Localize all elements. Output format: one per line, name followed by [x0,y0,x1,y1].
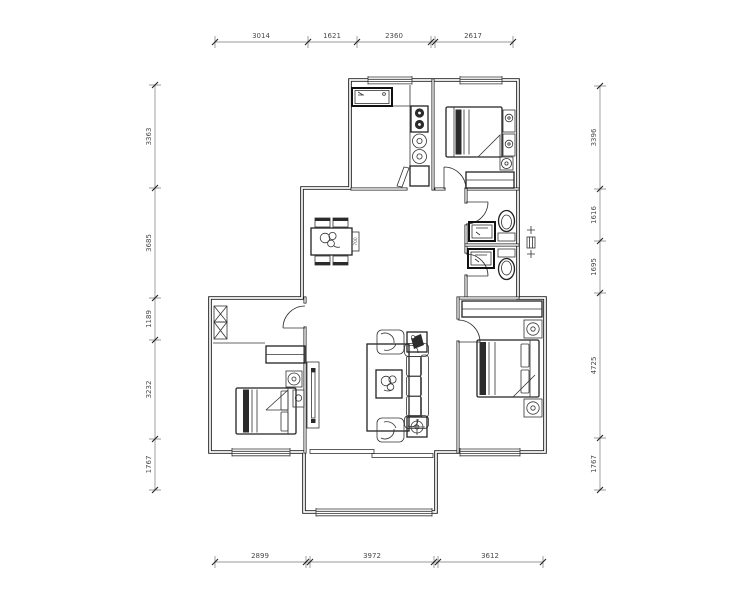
dim-label: 1616 [590,206,598,224]
balcony-window [316,508,432,517]
shelf-unit [214,306,227,322]
sideboard-label: 700 [353,237,359,246]
dimension-line-bottom: 2899 3972 3612 [212,552,546,568]
nightstand [524,399,542,417]
dimension-line-left: 3363 3685 1189 3232 1767 [145,82,161,493]
dim-label: 1621 [323,32,341,40]
door-bedroom-right [458,320,480,342]
dining-chair [315,218,330,227]
dim-label: 1767 [590,455,598,473]
bedroom-right [462,301,542,417]
tv-cabinet [307,362,319,428]
interior-walls [213,80,518,452]
exterior-walls [210,80,545,512]
stove [411,106,428,132]
dim-label: 3685 [145,234,153,252]
dining-chair [333,218,348,227]
wardrobe [266,346,305,363]
living-room [367,330,429,442]
coffee-table [376,370,402,398]
nightstand [293,390,304,407]
dim-label: 3396 [590,128,598,146]
bedroom-top-right [446,107,515,188]
stool [500,157,513,170]
kitchen [352,85,429,187]
dim-label: 2360 [385,32,403,40]
table-flowers [320,232,340,247]
floor-plan-canvas: 700 [0,0,740,600]
dim-label: 2617 [464,32,482,40]
bed [446,107,502,157]
washing-machine [413,134,427,164]
nightstand [503,110,515,132]
bed [477,340,539,397]
fridge [397,166,429,187]
dim-label: 2899 [251,552,269,560]
nightstand [503,134,515,156]
dim-label: 3612 [481,552,499,560]
bedroom-left [214,306,305,434]
dining-area: 700 [311,218,359,265]
dining-chair [315,256,330,265]
wardrobe [462,301,542,317]
kitchen-sink [352,88,392,106]
bedroom-top-window [460,76,502,85]
balcony-sliding-door [310,450,433,458]
bathroom-2 [468,249,515,280]
armchair [377,330,404,354]
dim-label: 3232 [145,381,153,399]
bed [236,388,296,434]
toilet [498,249,515,280]
kitchen-window [368,76,412,85]
stool [286,371,302,387]
toilet [498,211,515,242]
door-bedroom-left [283,306,305,328]
dim-label: 3363 [145,128,153,146]
dim-label: 3014 [252,32,270,40]
dimension-line-right: 3396 1616 1695 4725 1767 [590,83,606,493]
armchair [377,418,404,442]
dim-label: 1189 [145,310,153,328]
vanity-sink [468,249,494,268]
dim-label: 3972 [363,552,381,560]
entry-door-hardware [527,226,535,258]
dining-chair [333,256,348,265]
nightstand [524,320,542,338]
dining-table [311,228,352,255]
wardrobe [466,172,514,188]
sofa [405,344,429,429]
dim-label: 1767 [145,456,153,474]
vanity-sink [469,222,495,241]
sideboard: 700 [352,232,359,251]
door-bathroom-1 [466,202,488,224]
dimension-line-top: 3014 1621 2360 2617 [212,32,516,48]
bedroom-left-window [232,448,290,457]
dim-label: 4725 [590,357,598,375]
floor-plan-sheet: 700 [0,0,740,600]
dim-label: 1695 [590,258,598,276]
door-bedroom-top [444,167,466,189]
bedroom-right-window [460,448,520,457]
side-table-lamp [407,417,427,437]
shelf-unit [214,322,227,339]
bathroom-1 [469,211,515,242]
